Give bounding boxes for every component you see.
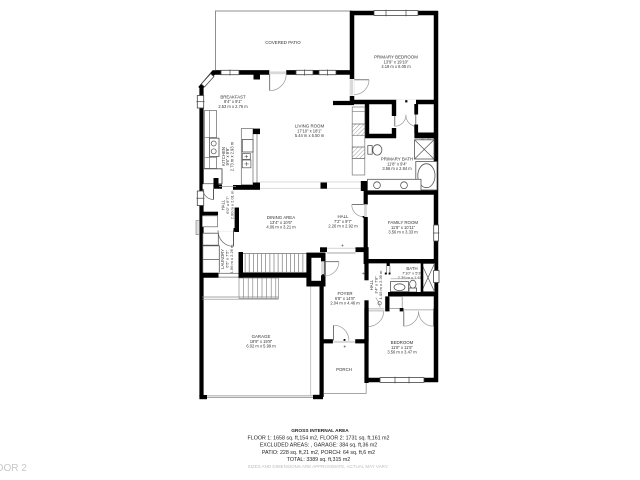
svg-text:SIZES AND DIMENSIONS ARE APPRO: SIZES AND DIMENSIONS ARE APPROXIMATE, AC… — [248, 464, 389, 469]
svg-text:2.26 m x 2.92 m: 2.26 m x 2.92 m — [328, 224, 358, 229]
svg-text:4.19 m x 6.05 m: 4.19 m x 6.05 m — [381, 64, 411, 69]
svg-text:3.56 m x 3.47 m: 3.56 m x 3.47 m — [387, 350, 417, 355]
svg-text:3.56 m x 2.84 m: 3.56 m x 2.84 m — [382, 166, 412, 171]
svg-text:1.05 m x 2.36 m: 1.05 m x 2.36 m — [378, 270, 383, 299]
svg-text:4.06 m x 3.21 m: 4.06 m x 3.21 m — [266, 225, 296, 230]
svg-text:EXCLUDED AREAS: , GARAGE: 384: EXCLUDED AREAS: , GARAGE: 384 sq. ft,36 … — [260, 443, 378, 449]
svg-text:2.73 m x 2.93 m: 2.73 m x 2.93 m — [230, 141, 235, 171]
svg-text:2.53 m x 2.76 m: 2.53 m x 2.76 m — [218, 104, 248, 109]
svg-text:FLOOR 1: 1658 sq. ft,154 m2, F: FLOOR 1: 1658 sq. ft,154 m2, FLOOR 2: 17… — [248, 435, 390, 441]
svg-text:1.96 m x 2.26 m: 1.96 m x 2.26 m — [229, 244, 234, 273]
svg-text:6.02 m x 5.99 m: 6.02 m x 5.99 m — [246, 344, 276, 349]
svg-text:TOTAL: 3389 sq. ft,315 m2: TOTAL: 3389 sq. ft,315 m2 — [287, 457, 350, 463]
svg-text:PORCH: PORCH — [336, 367, 352, 372]
svg-text:2.00 m x 2.01 m: 2.00 m x 2.01 m — [230, 190, 235, 219]
svg-text:GROSS INTERNAL AREA: GROSS INTERNAL AREA — [291, 428, 349, 434]
svg-text:COVERED PATIO: COVERED PATIO — [265, 40, 301, 45]
svg-text:FLOOR 2: FLOOR 2 — [0, 463, 27, 474]
svg-text:3.56 m x 3.33 m: 3.56 m x 3.33 m — [388, 230, 418, 235]
svg-text:2.04 m x 4.46 m: 2.04 m x 4.46 m — [330, 301, 360, 306]
svg-text:5.44 m x 5.50 m: 5.44 m x 5.50 m — [295, 133, 325, 138]
svg-text:PATIO: 228 sq. ft,21 m2, PORCH: PATIO: 228 sq. ft,21 m2, PORCH: 64 sq. f… — [262, 450, 375, 456]
